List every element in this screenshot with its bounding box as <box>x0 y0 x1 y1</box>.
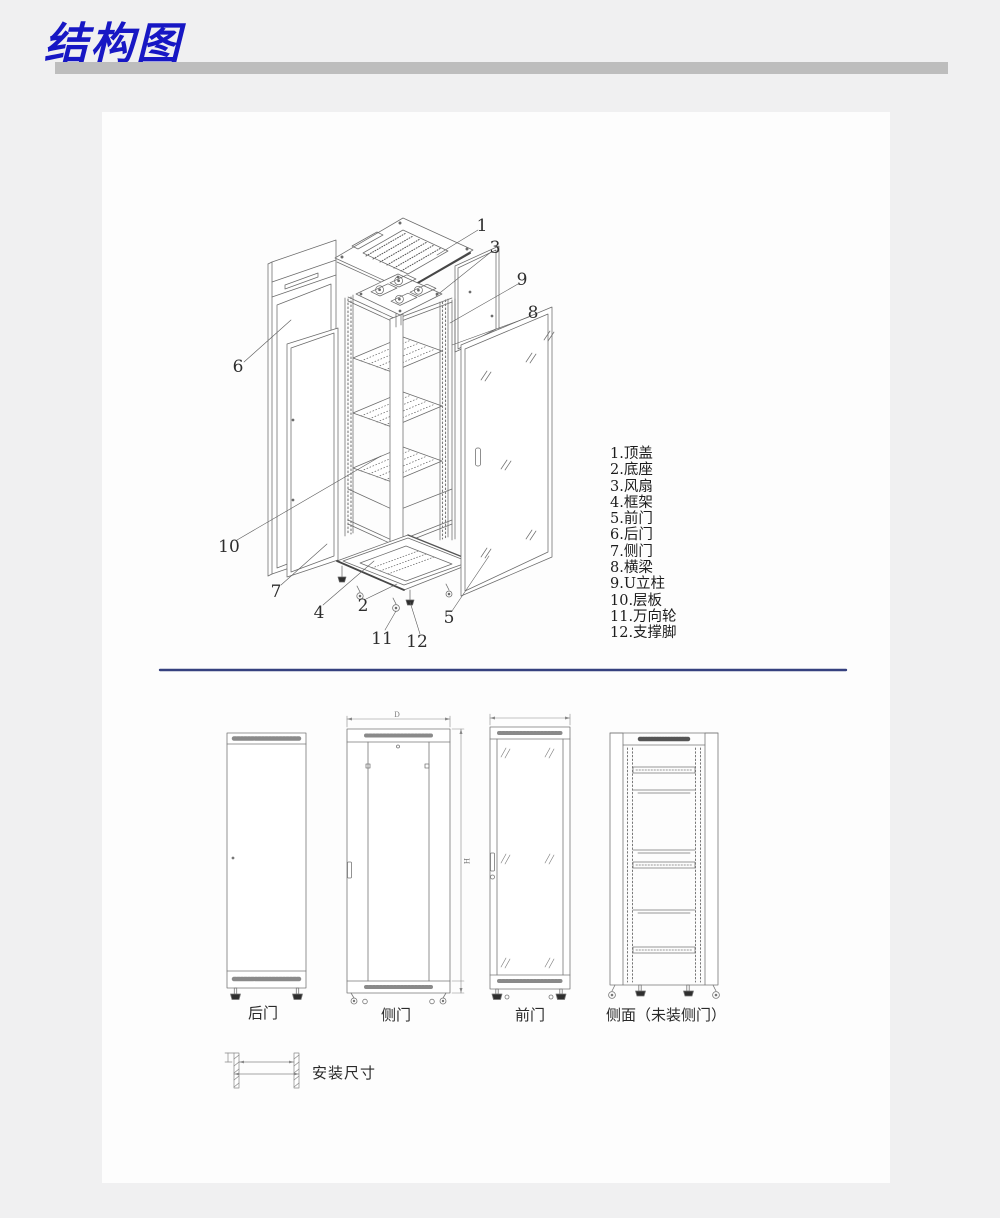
callout-6: 6 <box>233 357 244 377</box>
install-dimension-drawing <box>225 1053 299 1088</box>
rack-shelf <box>633 850 695 853</box>
callout-7: 7 <box>271 582 282 602</box>
front-door-view-label: 前门 <box>490 1004 570 1025</box>
caster-wheel <box>713 985 720 998</box>
legend-item: 2.底座 <box>610 462 677 478</box>
support-foot <box>338 566 346 582</box>
callout-9: 9 <box>517 270 528 290</box>
rack-shelf <box>633 910 695 913</box>
callout-12: 12 <box>406 632 428 652</box>
side-door-view-label: 侧门 <box>356 1004 436 1025</box>
install-dim-line-1 <box>239 1061 294 1064</box>
document-page: 结构图 <box>0 0 1000 1218</box>
leveling-foot <box>636 985 646 996</box>
back-door-view-label: 后门 <box>223 1002 303 1023</box>
leveling-foot <box>492 989 502 1000</box>
side-frame-view-label: 侧面（未装侧门） <box>586 1004 746 1025</box>
leveling-foot <box>293 988 303 1000</box>
title-underline <box>55 62 948 74</box>
fan-tray <box>356 274 442 315</box>
callout-8: 8 <box>528 303 539 323</box>
dimension-width <box>490 714 570 725</box>
rack-beam <box>633 862 695 868</box>
rack-beam <box>633 947 695 953</box>
callout-1: 1 <box>477 216 488 236</box>
legend-item: 3.风扇 <box>610 479 677 495</box>
install-dim-line-2 <box>234 1073 299 1076</box>
callout-10: 10 <box>218 537 240 557</box>
elevation-side-frame <box>609 733 720 998</box>
legend-item: 1.顶盖 <box>610 446 677 462</box>
leveling-foot <box>231 988 241 1000</box>
rail-hatch <box>234 1055 299 1087</box>
install-dimension-label: 安装尺寸 <box>312 1062 382 1083</box>
callout-3: 3 <box>490 238 501 258</box>
callout-5: 5 <box>444 608 455 628</box>
parts-legend: 1.顶盖 2.底座 3.风扇 4.框架 5.前门 6.后门 7.侧门 8.横梁 … <box>610 446 677 642</box>
leveling-foot <box>684 985 694 996</box>
caster-wheel <box>549 995 553 999</box>
caster-wheel <box>609 985 616 998</box>
legend-item: 5.前门 <box>610 511 677 527</box>
rack-beam <box>633 767 695 773</box>
legend-item: 8.横梁 <box>610 560 677 576</box>
exploded-view-drawing: 1 3 9 8 6 10 7 4 2 11 12 5 <box>218 216 554 652</box>
elevation-back-door <box>227 733 306 1000</box>
elevation-front-door <box>490 714 570 1000</box>
legend-item: 6.后门 <box>610 527 677 543</box>
legend-item: 7.侧门 <box>610 544 677 560</box>
cabinet-frame <box>345 295 455 556</box>
caster-wheel <box>440 993 446 1004</box>
legend-item: 11.万向轮 <box>610 609 677 625</box>
install-dim-left <box>225 1053 234 1062</box>
legend-item: 9.U立柱 <box>610 576 677 592</box>
front-door-panel <box>461 307 554 596</box>
rack-shelf <box>633 790 695 793</box>
callout-2: 2 <box>358 596 369 616</box>
legend-item: 12.支撑脚 <box>610 625 677 641</box>
side-door-panel <box>287 328 338 577</box>
caster-wheel <box>446 584 452 597</box>
legend-item: 10.层板 <box>610 593 677 609</box>
caster-wheel <box>351 993 357 1004</box>
callout-4: 4 <box>314 603 325 623</box>
dim-depth-label: D <box>394 711 400 719</box>
elevation-side-door: D H <box>347 711 470 1004</box>
legend-item: 4.框架 <box>610 495 677 511</box>
callout-11: 11 <box>371 629 393 649</box>
caster-wheel <box>393 598 400 611</box>
caster-wheel <box>505 995 509 999</box>
dim-height-label: H <box>462 858 470 864</box>
leveling-foot <box>556 989 566 1000</box>
